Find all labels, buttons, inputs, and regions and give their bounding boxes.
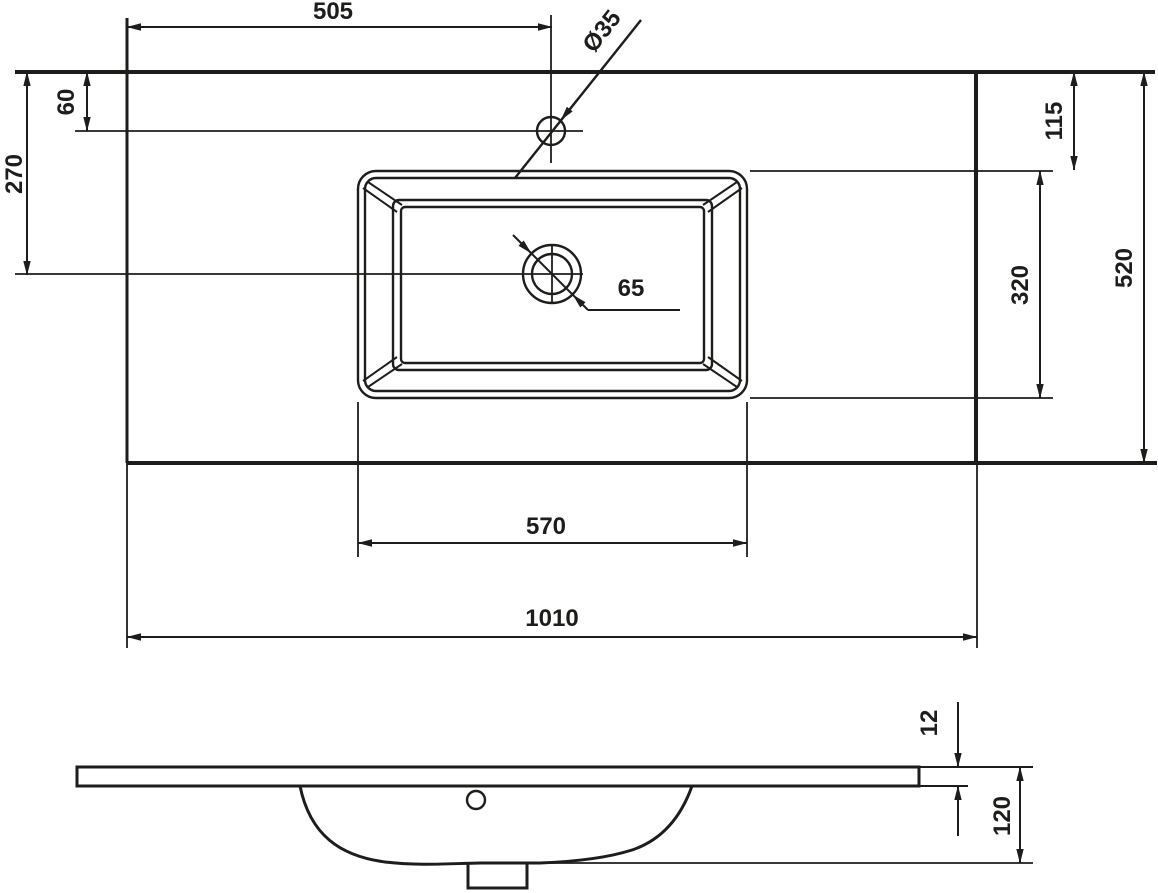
dim-label-115: 115 (1041, 102, 1068, 141)
dim-label-65: 65 (618, 275, 645, 302)
side-profile-view: 12 120 (77, 702, 1033, 888)
dim-label-570: 570 (526, 513, 566, 540)
dim-12-slab-thickness: 12 (916, 702, 958, 836)
dim-faucet-diameter: Ø35 (515, 5, 641, 178)
dim-label-120: 120 (989, 796, 1016, 836)
dim-label-60: 60 (53, 89, 80, 116)
dim-120-total-height: 120 (989, 767, 1020, 863)
dim-label-520: 520 (1111, 248, 1138, 288)
top-view: 505 60 270 115 320 520 570 1010 65 (1, 0, 1157, 648)
dim-label-270: 270 (1, 154, 28, 194)
profile-basin-bowl (300, 786, 692, 864)
profile-drain-outlet (468, 863, 527, 888)
dim-label-320: 320 (1007, 265, 1034, 305)
dim-label-505: 505 (313, 0, 353, 25)
profile-countertop-slab (77, 767, 919, 786)
profile-faucet-hole (467, 791, 485, 809)
dim-label-12: 12 (916, 710, 943, 737)
dim-label-faucet-diameter: Ø35 (577, 5, 626, 57)
dim-label-1010: 1010 (525, 605, 578, 632)
washbasin-technical-drawing: 505 60 270 115 320 520 570 1010 65 (0, 0, 1158, 893)
